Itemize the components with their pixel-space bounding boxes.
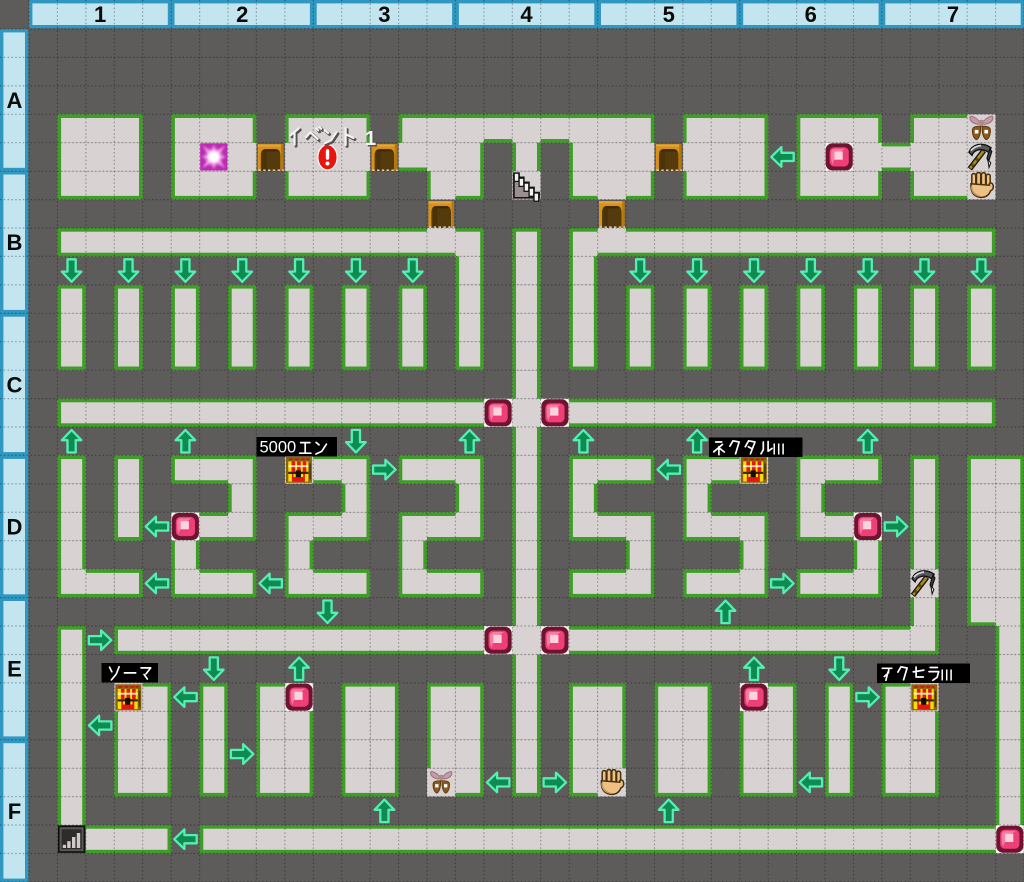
svg-text:1: 1 (365, 128, 376, 150)
svg-text:III: III (772, 442, 785, 459)
svg-text:4: 4 (520, 2, 533, 27)
svg-text:5000: 5000 (260, 439, 297, 457)
svg-text:1: 1 (94, 2, 106, 27)
svg-text:5: 5 (663, 2, 675, 27)
svg-text:6: 6 (805, 2, 817, 27)
svg-text:2: 2 (236, 2, 248, 27)
svg-text:D: D (7, 515, 23, 540)
svg-text:A: A (7, 88, 23, 113)
svg-text:C: C (7, 372, 23, 397)
svg-text:B: B (7, 230, 23, 255)
svg-text:E: E (7, 657, 22, 682)
svg-text:F: F (8, 799, 21, 824)
svg-text:III: III (940, 668, 953, 685)
svg-text:7: 7 (947, 2, 959, 27)
svg-text:3: 3 (378, 2, 390, 27)
